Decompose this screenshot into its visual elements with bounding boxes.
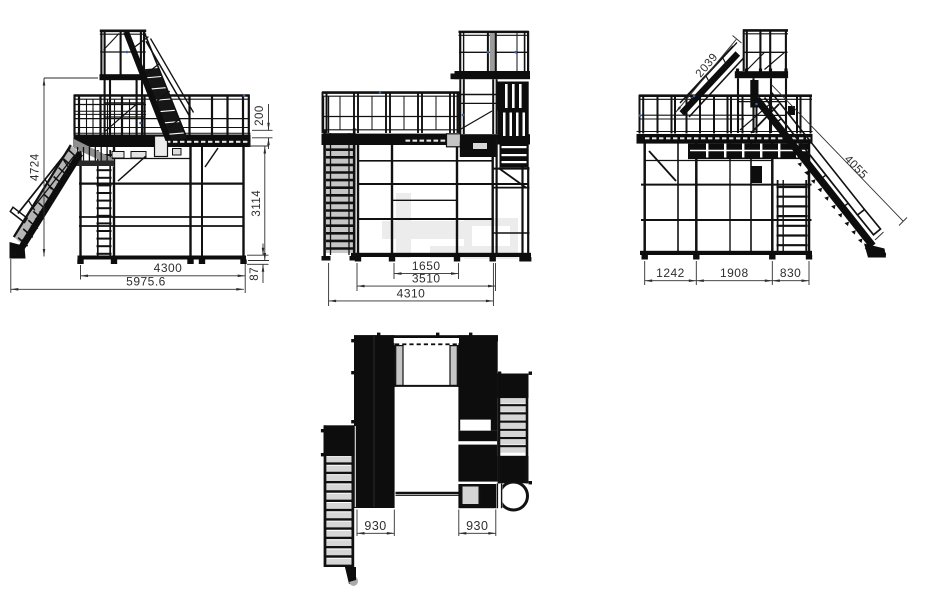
svg-text:87: 87 bbox=[249, 267, 261, 281]
svg-text:4300: 4300 bbox=[154, 261, 183, 275]
svg-text:5975.6: 5975.6 bbox=[126, 275, 166, 289]
svg-text:930: 930 bbox=[364, 519, 386, 533]
svg-text:3114: 3114 bbox=[251, 190, 263, 217]
svg-text:1908: 1908 bbox=[720, 266, 749, 280]
svg-text:930: 930 bbox=[466, 519, 488, 533]
svg-text:4724: 4724 bbox=[30, 153, 42, 181]
svg-text:200: 200 bbox=[254, 105, 266, 126]
svg-text:830: 830 bbox=[780, 266, 802, 280]
svg-text:4310: 4310 bbox=[397, 286, 426, 300]
svg-text:3510: 3510 bbox=[412, 272, 441, 286]
svg-text:1242: 1242 bbox=[656, 266, 685, 280]
